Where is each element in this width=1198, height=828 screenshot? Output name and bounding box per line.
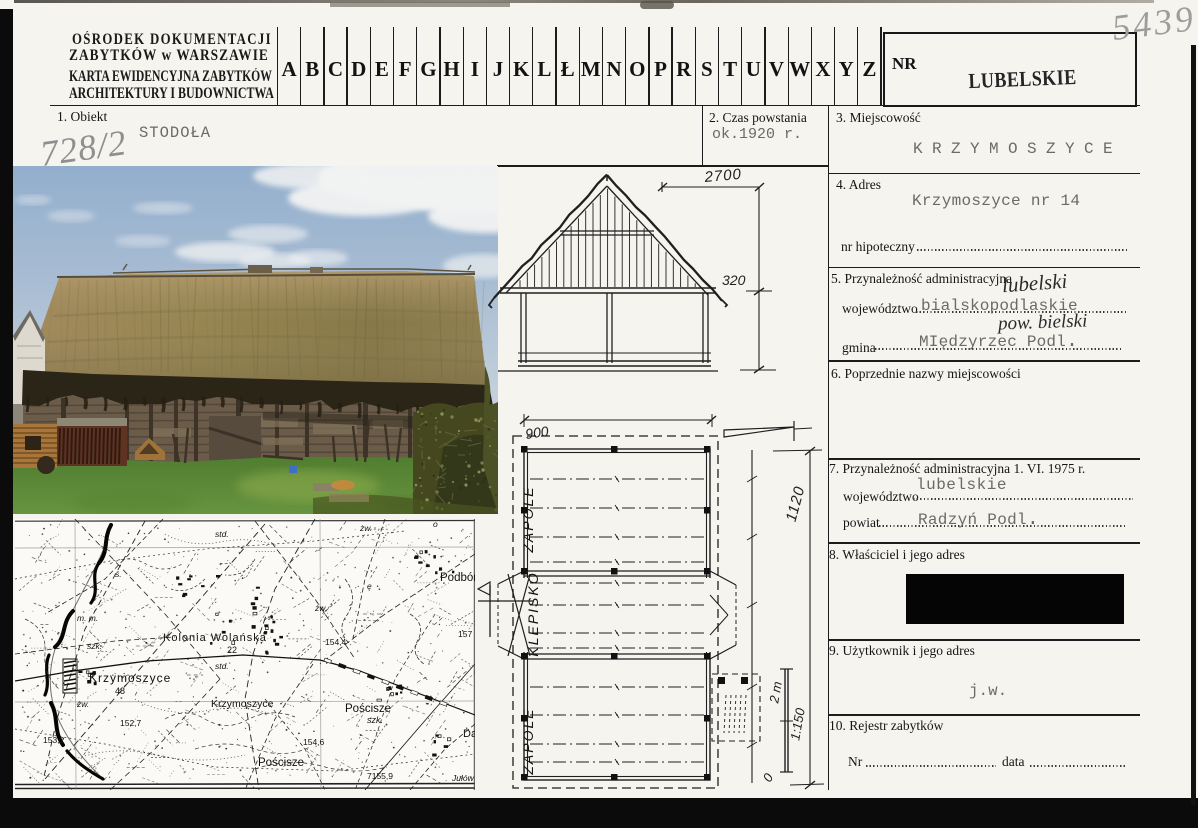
svg-text:2700: 2700: [703, 166, 743, 186]
svg-text:22: 22: [227, 645, 237, 655]
svg-text:o: o: [433, 519, 438, 529]
svg-text:ZAPOLE: ZAPOLE: [520, 485, 536, 553]
svg-text:std.: std.: [215, 529, 229, 539]
svg-text:m. m.: m. m.: [77, 613, 98, 623]
svg-text:Pościsze: Pościsze: [258, 757, 304, 769]
svg-text:Krzymoszyce: Krzymoszyce: [89, 671, 171, 685]
svg-text:std.: std.: [215, 661, 229, 671]
svg-text:7155,9: 7155,9: [367, 771, 393, 781]
svg-text:154,4: 154,4: [325, 637, 347, 647]
svg-text:Krzymoszyce: Krzymoszyce: [211, 698, 274, 710]
svg-text:Pościsze: Pościsze: [345, 703, 391, 715]
svg-text:żw.: żw.: [314, 603, 327, 613]
svg-text:154,6: 154,6: [303, 737, 325, 747]
svg-text:900: 900: [524, 423, 550, 442]
svg-text:0: 0: [760, 770, 777, 784]
svg-text:żw.: żw.: [76, 699, 89, 709]
svg-text:Kolonia Wolańska: Kolonia Wolańska: [163, 632, 267, 644]
svg-text:KLEPISKO: KLEPISKO: [525, 571, 541, 656]
svg-text:ZAPOLE: ZAPOLE: [520, 707, 536, 775]
svg-text:1120: 1120: [783, 484, 809, 523]
svg-text:152,7: 152,7: [120, 718, 142, 728]
svg-text:320: 320: [722, 272, 746, 288]
svg-text:ś.: ś.: [115, 569, 122, 579]
svg-text:153,2: 153,2: [43, 735, 65, 745]
svg-text:ę: ę: [367, 581, 372, 591]
svg-text:48: 48: [115, 686, 125, 696]
svg-text:szk.: szk.: [367, 715, 383, 725]
svg-text:szk.: szk.: [87, 641, 102, 651]
svg-text:żw.: żw.: [359, 523, 372, 533]
svg-text:1:150: 1:150: [787, 706, 808, 741]
svg-text:2 m: 2 m: [766, 680, 785, 705]
